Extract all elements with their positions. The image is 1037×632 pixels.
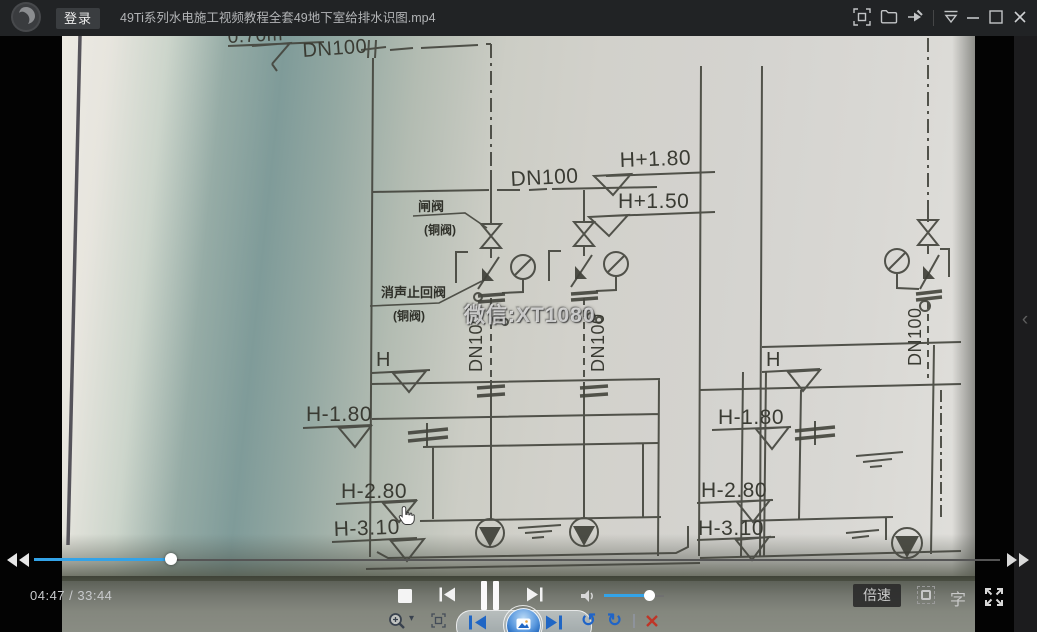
menu-dropdown-icon [942,8,960,26]
fast-forward-button[interactable] [1006,552,1030,568]
pv-previous-icon [468,615,488,630]
video-scale-button[interactable] [917,586,935,604]
video-scale-icon [921,590,931,600]
drawing-label-h-plus-150: H+1.50 [618,190,689,213]
previous-button[interactable] [439,587,456,602]
drawing-label-riser-c: DN100 [905,307,925,366]
close-button[interactable] [1011,8,1031,28]
pause-button[interactable] [481,581,500,610]
time-display: 04:47 / 33:44 [30,588,112,603]
volume-handle[interactable] [644,590,655,601]
main-menu-button[interactable] [942,8,962,28]
pv-rotate-ccw-icon: ↺ [581,611,596,629]
pv-zoom-caret-icon: ▾ [409,613,414,624]
pin-on-top-button[interactable] [906,8,926,28]
volume-fill [604,594,649,597]
rewind-button[interactable] [6,552,30,568]
player-logo-icon [11,2,41,32]
drawing-label-valve2-name: 消声止回阀 [381,285,446,300]
drawing-label-h-right: H [766,349,781,371]
pv-delete-icon [645,614,659,628]
pv-rotate-cw-icon: ↻ [607,611,622,629]
pause-bar-right [493,581,499,610]
open-file-button[interactable] [880,8,900,28]
pause-bar-left [481,581,487,610]
drawing-label-top-dim: 0.70m [227,36,283,48]
playlist-panel-strip: ‹ [1014,36,1037,632]
drawing-label-right-m280: H-2.80 [701,479,767,502]
pin-icon [906,8,924,26]
stop-button[interactable] [398,589,412,603]
minimize-button[interactable] [964,8,984,28]
video-frame[interactable]: 0.70m DN100 DN100 H+1.80 H+1.50 H H H-1.… [62,36,975,632]
login-button[interactable]: 登录 [56,8,100,29]
volume-icon[interactable] [580,589,596,603]
page-edge-line [68,36,80,545]
maximize-button[interactable] [987,8,1007,28]
titlebar-separator [933,10,934,26]
drawing-label-valve2-type: (铜阀) [393,308,425,323]
mouse-cursor [398,505,415,526]
pv-separator [633,614,635,628]
video-stage[interactable]: 0.70m DN100 DN100 H+1.80 H+1.50 H H H-1.… [0,36,1037,632]
playback-speed-button[interactable]: 倍速 [853,584,901,607]
seek-bar-fill [34,558,171,561]
drawing-label-left-m180: H-1.80 [306,403,372,426]
titlebar: 登录 49Ti系列水电施工视频教程全套49地下室给排水识图.mp4 [0,0,1037,37]
folder-icon [880,8,898,26]
drawing-label-dn100-header: DN100 [510,164,579,191]
piping-diagram: 0.70m DN100 DN100 H+1.80 H+1.50 H H H-1.… [62,36,975,632]
drawing-label-right-m180: H-1.80 [718,406,784,429]
watermark-text: 微信:XT1080 [464,299,596,329]
pv-zoom-icon [388,612,406,630]
drawing-label-left-m280: H-2.80 [341,480,407,503]
playlist-toggle-chevron[interactable]: ‹ [1016,308,1034,332]
drawing-label-dn100-top: DN100 [302,36,368,62]
drawing-label-left-m310: H-3.10 [333,516,400,541]
seek-bar-track[interactable] [34,559,1000,561]
close-icon [1011,8,1029,26]
maximize-icon [987,8,1005,26]
minimize-icon [964,8,982,26]
pv-picture-icon [516,618,531,630]
drawing-label-h-left: H [376,349,391,371]
screenshot-icon [853,8,871,26]
drawing-label-valve1-type: (铜阀) [424,222,456,237]
drawing-label-valve1-name: 闸阀 [418,199,444,214]
subtitle-button[interactable]: 字 [950,586,966,610]
window-title: 49Ti系列水电施工视频教程全套49地下室给排水识图.mp4 [120,0,436,36]
drawing-label-h-plus-180: H+1.80 [619,147,691,172]
pv-actual-size-icon [431,613,446,628]
next-button[interactable] [526,587,543,602]
fullscreen-button[interactable] [983,586,1005,608]
pv-next-icon [544,615,564,630]
screenshot-button[interactable] [853,8,873,28]
drawing-label-right-m310: H-3.10 [698,517,764,540]
